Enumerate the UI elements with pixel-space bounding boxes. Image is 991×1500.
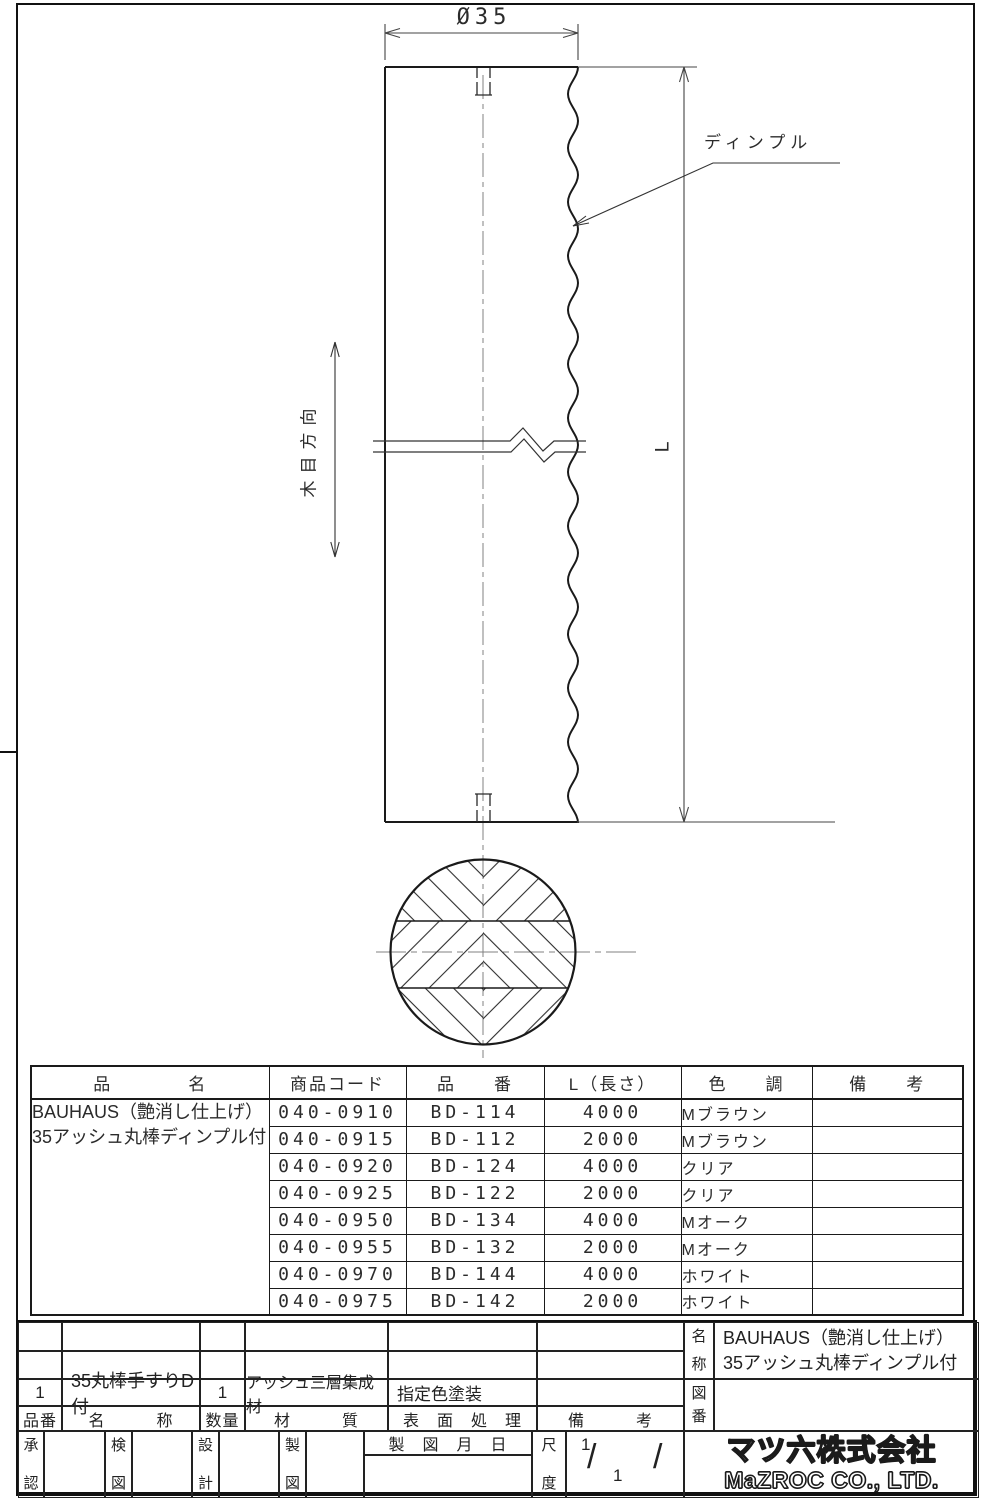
cell-part-number: BD-124 [406, 1153, 544, 1180]
length-dimension-text: L [648, 433, 678, 461]
title-block: 1 35丸棒手すりD付 1 アッシュ三層集成材 指定色塗装 品番 名 称 数量 … [16, 1320, 977, 1496]
draft-date-header: 製 図 月 日 [364, 1431, 532, 1455]
empty-cell [537, 1322, 684, 1351]
name-section-label: 名 称 [684, 1322, 714, 1379]
cell-code: 040-0970 [269, 1261, 406, 1288]
scale-label: 尺 度 [532, 1431, 566, 1498]
parts-table: 品 名 商品コード 品 番 L（長さ） 色 調 備 考 BAUHAUS（艶消し仕… [30, 1065, 964, 1316]
item-material: アッシュ三層集成材 [245, 1379, 388, 1406]
cell-code: 040-0925 [269, 1180, 406, 1207]
cell-length: 2000 [544, 1288, 681, 1315]
empty-cell [388, 1322, 537, 1351]
cell-code: 040-0950 [269, 1207, 406, 1234]
length-dimension [577, 67, 835, 822]
col-header-length: L（長さ） [544, 1066, 681, 1099]
col-header-remarks: 備 考 [812, 1066, 963, 1099]
draft-value [306, 1431, 364, 1498]
parts-table-wrap: 品 名 商品コード 品 番 L（長さ） 色 調 備 考 BAUHAUS（艶消し仕… [30, 1065, 964, 1316]
scale-value: 1 / 1 / [566, 1431, 684, 1498]
cell-remarks [812, 1126, 963, 1153]
empty-cell [62, 1322, 200, 1351]
table-row: BAUHAUS（艶消し仕上げ） 35アッシュ丸棒ディンプル付 040-0910 … [31, 1099, 963, 1126]
cell-remarks [812, 1207, 963, 1234]
cell-length: 2000 [544, 1234, 681, 1261]
company-logo: マツ六株式会社 MaZROC CO., LTD. [684, 1431, 979, 1498]
check-label: 検 図 [105, 1431, 132, 1498]
cell-remarks [812, 1234, 963, 1261]
cell-part-number: BD-112 [406, 1126, 544, 1153]
draft-label: 製 図 [279, 1431, 306, 1498]
break-line [373, 428, 586, 462]
cell-part-number: BD-134 [406, 1207, 544, 1234]
cell-part-number: BD-142 [406, 1288, 544, 1315]
drawing-sheet: { "drawing": { "diameter_dim": "Ø35", "l… [0, 0, 991, 1500]
grain-direction-text: 木目方向 [240, 382, 374, 516]
name-value-line2: 35アッシュ丸棒ディンプル付 [723, 1351, 957, 1376]
cell-length: 4000 [544, 1153, 681, 1180]
company-logo-japanese: マツ六株式会社 [726, 1437, 936, 1466]
cell-code: 040-0915 [269, 1126, 406, 1153]
cell-color: Mブラウン [681, 1099, 812, 1126]
col-header-product-code: 商品コード [269, 1066, 406, 1099]
wavy-dimple-edge [568, 67, 578, 823]
cell-remarks [812, 1288, 963, 1315]
cell-color: Mブラウン [681, 1126, 812, 1153]
col-header-product-name: 品 名 [31, 1066, 269, 1099]
cell-color: クリア [681, 1153, 812, 1180]
parts-table-header-row: 品 名 商品コード 品 番 L（長さ） 色 調 備 考 [31, 1066, 963, 1099]
header-material: 材 質 [245, 1406, 388, 1431]
scale-slash: / [587, 1438, 596, 1477]
cell-color: ホワイト [681, 1261, 812, 1288]
header-item-name: 名 称 [62, 1406, 200, 1431]
header-remarks: 備 考 [537, 1406, 684, 1431]
company-logo-english: MaZROC CO., LTD. [724, 1469, 939, 1492]
empty-cell [200, 1351, 245, 1379]
cell-length: 4000 [544, 1099, 681, 1126]
cell-color: Mオーク [681, 1234, 812, 1261]
dimple-leader [573, 163, 840, 226]
cell-code: 040-0920 [269, 1153, 406, 1180]
design-label: 設 計 [192, 1431, 219, 1498]
cell-remarks [812, 1180, 963, 1207]
empty-cell [245, 1322, 388, 1351]
check-value [132, 1431, 192, 1498]
cell-code: 040-0955 [269, 1234, 406, 1261]
cell-remarks [812, 1099, 963, 1126]
approval-value [44, 1431, 105, 1498]
cell-length: 2000 [544, 1126, 681, 1153]
empty-cell [18, 1351, 62, 1379]
cell-color: ホワイト [681, 1288, 812, 1315]
cell-code: 040-0910 [269, 1099, 406, 1126]
name-section-value: BAUHAUS（艶消し仕上げ） 35アッシュ丸棒ディンプル付 [714, 1322, 979, 1379]
item-number: 1 [18, 1379, 62, 1406]
drawing-number-value [714, 1379, 979, 1431]
item-quantity: 1 [200, 1379, 245, 1406]
cell-remarks [812, 1153, 963, 1180]
item-remarks [537, 1379, 684, 1406]
technical-drawing [0, 0, 991, 1080]
approval-label: 承 認 [18, 1431, 44, 1498]
header-item-number: 品番 [18, 1406, 62, 1431]
col-header-part-number: 品 番 [406, 1066, 544, 1099]
empty-cell [388, 1351, 537, 1379]
cell-length: 4000 [544, 1207, 681, 1234]
cell-part-number: BD-132 [406, 1234, 544, 1261]
cell-color: クリア [681, 1180, 812, 1207]
cell-color: Mオーク [681, 1207, 812, 1234]
scale-extra-slash: / [653, 1438, 662, 1477]
product-name-line2: 35アッシュ丸棒ディンプル付 [32, 1125, 269, 1150]
item-name: 35丸棒手すりD付 [62, 1379, 200, 1406]
cell-length: 4000 [544, 1261, 681, 1288]
cell-code: 040-0975 [269, 1288, 406, 1315]
cell-remarks [812, 1261, 963, 1288]
cell-length: 2000 [544, 1180, 681, 1207]
drawing-number-label: 図 番 [684, 1379, 714, 1431]
empty-cell [200, 1322, 245, 1351]
name-value-line1: BAUHAUS（艶消し仕上げ） [723, 1326, 954, 1351]
empty-cell [18, 1322, 62, 1351]
draft-date-value [364, 1455, 532, 1498]
header-surface: 表 面 処 理 [388, 1406, 537, 1431]
header-quantity: 数量 [200, 1406, 245, 1431]
empty-cell [537, 1351, 684, 1379]
dimple-annotation-text: ディンプル [704, 128, 854, 153]
cross-section-view [390, 859, 577, 1046]
design-value [219, 1431, 279, 1498]
product-name-line1: BAUHAUS（艶消し仕上げ） [32, 1100, 269, 1125]
item-surface: 指定色塗装 [388, 1379, 537, 1406]
cell-part-number: BD-114 [406, 1099, 544, 1126]
col-header-color: 色 調 [681, 1066, 812, 1099]
scale-denominator: 1 [613, 1466, 622, 1486]
cell-part-number: BD-144 [406, 1261, 544, 1288]
cell-part-number: BD-122 [406, 1180, 544, 1207]
diameter-dimension-text: Ø35 [434, 5, 534, 30]
product-name-cell: BAUHAUS（艶消し仕上げ） 35アッシュ丸棒ディンプル付 [31, 1099, 269, 1315]
